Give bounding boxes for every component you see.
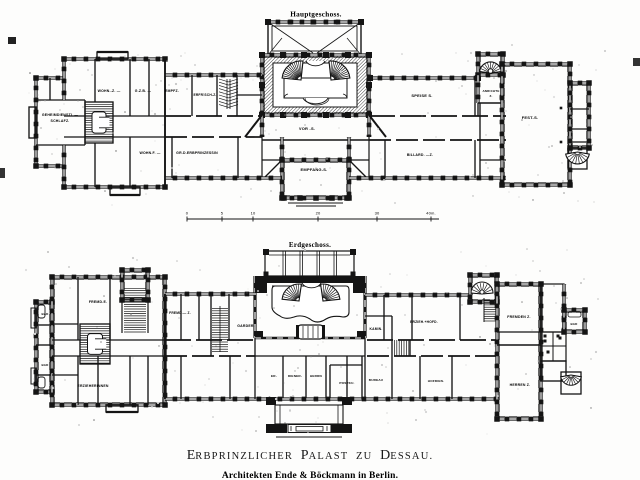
svg-text:WOHN.-Z. —: WOHN.-Z. — [98, 89, 121, 93]
svg-text:BILLARD. —Z.: BILLARD. —Z. [407, 153, 433, 157]
svg-text:10: 10 [251, 211, 256, 216]
svg-text:ERBPRINZLICHER PALAST ZU DE: ERBPRINZLICHER PALAST ZU DESSAU. [187, 448, 434, 463]
svg-text:FREMD.— Z.: FREMD.— Z. [169, 311, 191, 315]
svg-text:BAD: BAD [41, 363, 49, 367]
svg-text:SPEISE S.: SPEISE S. [411, 93, 432, 98]
svg-text:FEST-S.: FEST-S. [522, 115, 539, 120]
svg-text:HERREN Z.: HERREN Z. [510, 383, 531, 387]
svg-text:20: 20 [316, 211, 321, 216]
svg-text:GR.D.ERBPRINZESSIN: GR.D.ERBPRINZESSIN [176, 151, 218, 155]
svg-text:ANRICHTE: ANRICHTE [482, 89, 499, 93]
svg-text:BAD: BAD [41, 312, 49, 316]
svg-text:WOHN.F. —: WOHN.F. — [139, 151, 160, 155]
svg-text:ERZIEHERINNEN: ERZIEHERINNEN [77, 384, 108, 388]
svg-text:VOR -S.: VOR -S. [299, 126, 315, 131]
svg-text:G.Z.B. —: G.Z.B. — [135, 89, 152, 93]
svg-text:GARDER.: GARDER. [237, 324, 255, 328]
svg-text:KAMIN.: KAMIN. [370, 327, 383, 331]
svg-text:DIENER-: DIENER- [288, 374, 302, 378]
svg-text:FREMDEN Z.: FREMDEN Z. [507, 315, 530, 319]
svg-text:Hauptgeschoss.: Hauptgeschoss. [290, 11, 342, 19]
svg-text:Z.: Z. [489, 94, 492, 98]
svg-text:HOFDIEN.: HOFDIEN. [428, 379, 444, 383]
svg-text:POSTKU.: POSTKU. [339, 381, 354, 385]
svg-text:BAD: BAD [570, 322, 578, 326]
svg-text:Erdgeschoss.: Erdgeschoss. [289, 241, 331, 249]
svg-text:ER-: ER- [271, 374, 277, 378]
svg-text:ERZIEH.+HOFD.: ERZIEH.+HOFD. [410, 320, 438, 324]
svg-text:FREMD.E.: FREMD.E. [89, 300, 107, 304]
svg-text:EMPFANG-S.: EMPFANG-S. [301, 167, 328, 172]
svg-text:30: 30 [375, 211, 380, 216]
svg-text:BUREAU: BUREAU [369, 378, 384, 382]
svg-text:HERRN: HERRN [310, 374, 323, 378]
svg-text:EMPFZ.: EMPFZ. [165, 89, 179, 93]
svg-text:40m.: 40m. [426, 211, 436, 216]
svg-text:Architekten Ende & Böckmann in: Architekten Ende & Böckmann in Berlin. [222, 471, 398, 480]
svg-text:SCHLAFZ.: SCHLAFZ. [51, 119, 70, 123]
